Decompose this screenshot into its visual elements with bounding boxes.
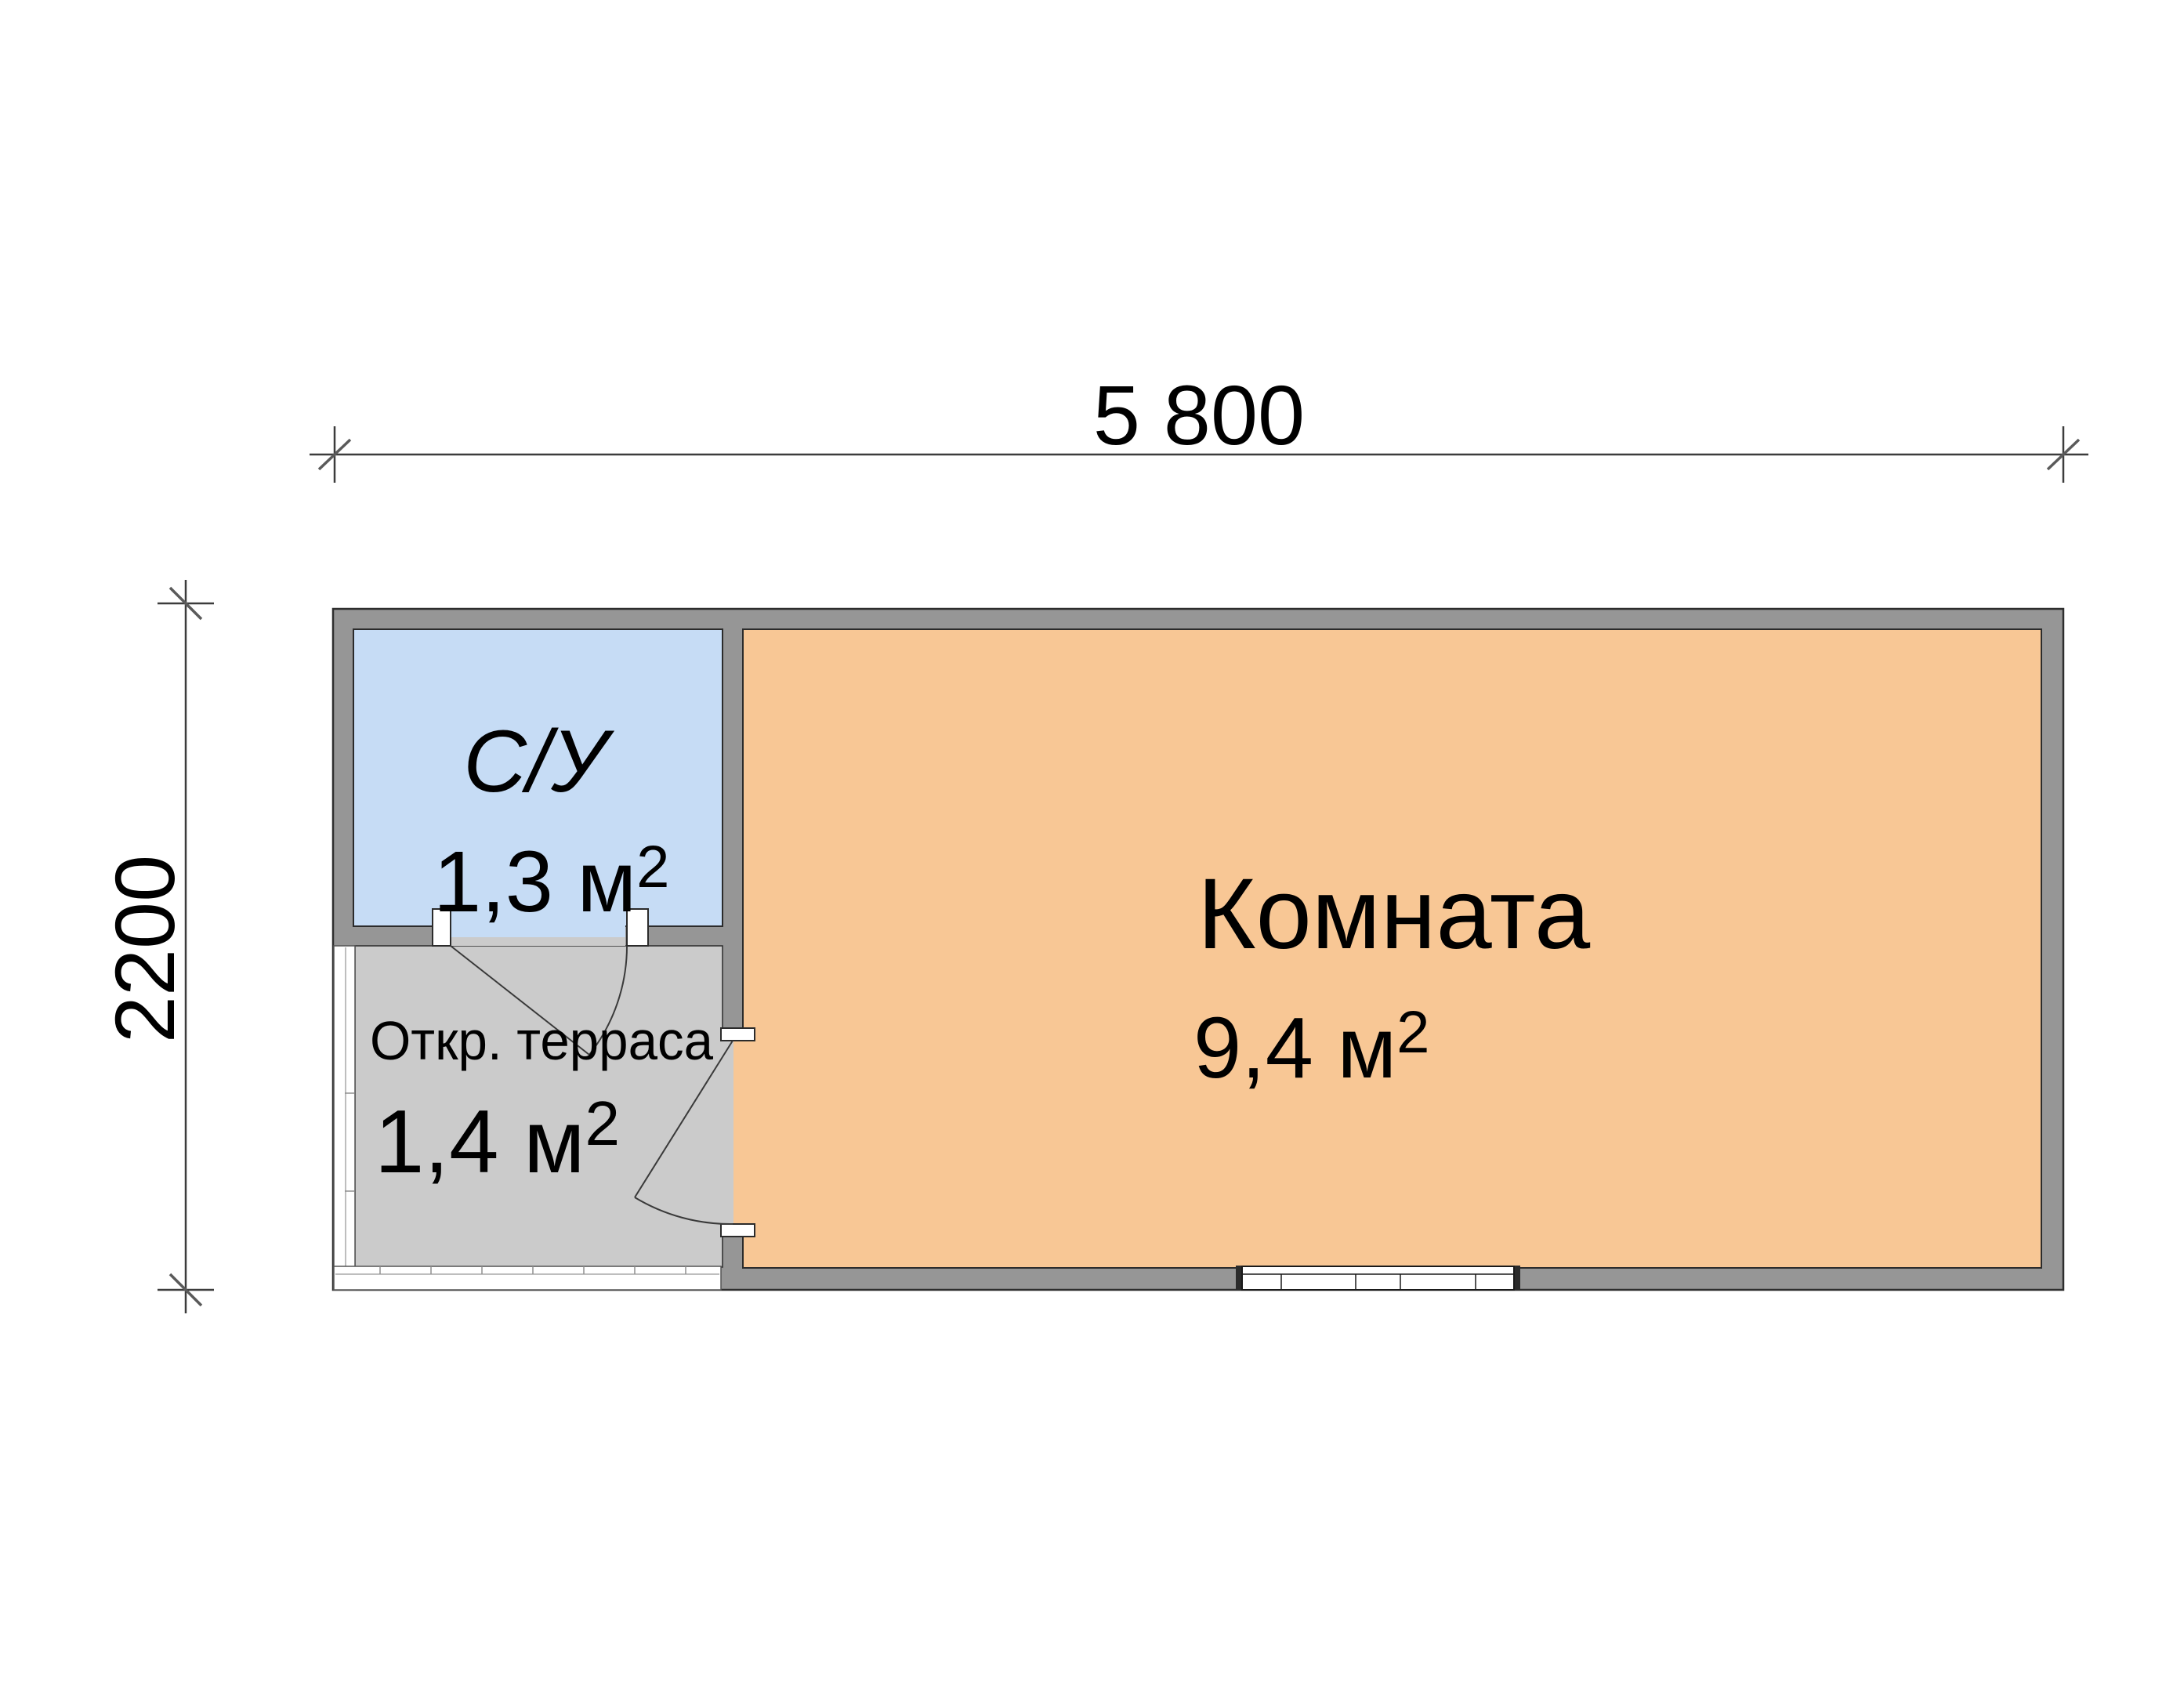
room-door-opening-terrace-side	[722, 1041, 733, 1224]
terrace-open-edge-left	[334, 946, 355, 1290]
floor-plan-canvas: 5 800 2200	[0, 0, 2184, 1680]
main-room-area-value: 9,4 м	[1193, 1000, 1396, 1096]
window-end-cap-left	[1236, 1266, 1242, 1290]
terrace-label: Откр. терраса	[370, 1010, 713, 1071]
terrace-area-value: 1,4 м	[375, 1092, 585, 1192]
terrace-open-edge-bottom	[334, 1266, 721, 1290]
bathroom-door-opening-lower	[451, 937, 625, 946]
dimension-height-label: 2200	[97, 855, 192, 1043]
bathroom-area-value: 1,3 м	[433, 834, 636, 930]
room-door-opening-room-side	[733, 1041, 744, 1224]
bathroom-label: С/У	[463, 712, 614, 810]
main-room-area-sup: 2	[1396, 999, 1429, 1066]
floor-plan: 5 800 2200	[0, 0, 2184, 1680]
dimension-width-label: 5 800	[1093, 368, 1305, 462]
room-door-jamb-top	[721, 1028, 755, 1041]
terrace-area: 1,4 м2	[375, 1088, 620, 1192]
bathroom-area: 1,3 м2	[433, 834, 669, 930]
window-end-cap-right	[1514, 1266, 1520, 1290]
main-room-area: 9,4 м2	[1193, 999, 1429, 1096]
main-room-label: Комната	[1197, 858, 1591, 970]
room-door-jamb-bottom	[721, 1224, 755, 1237]
bathroom-area-sup: 2	[636, 834, 669, 900]
window	[1236, 1266, 1520, 1290]
terrace-area-sup: 2	[585, 1088, 621, 1158]
window-frame	[1242, 1266, 1514, 1290]
